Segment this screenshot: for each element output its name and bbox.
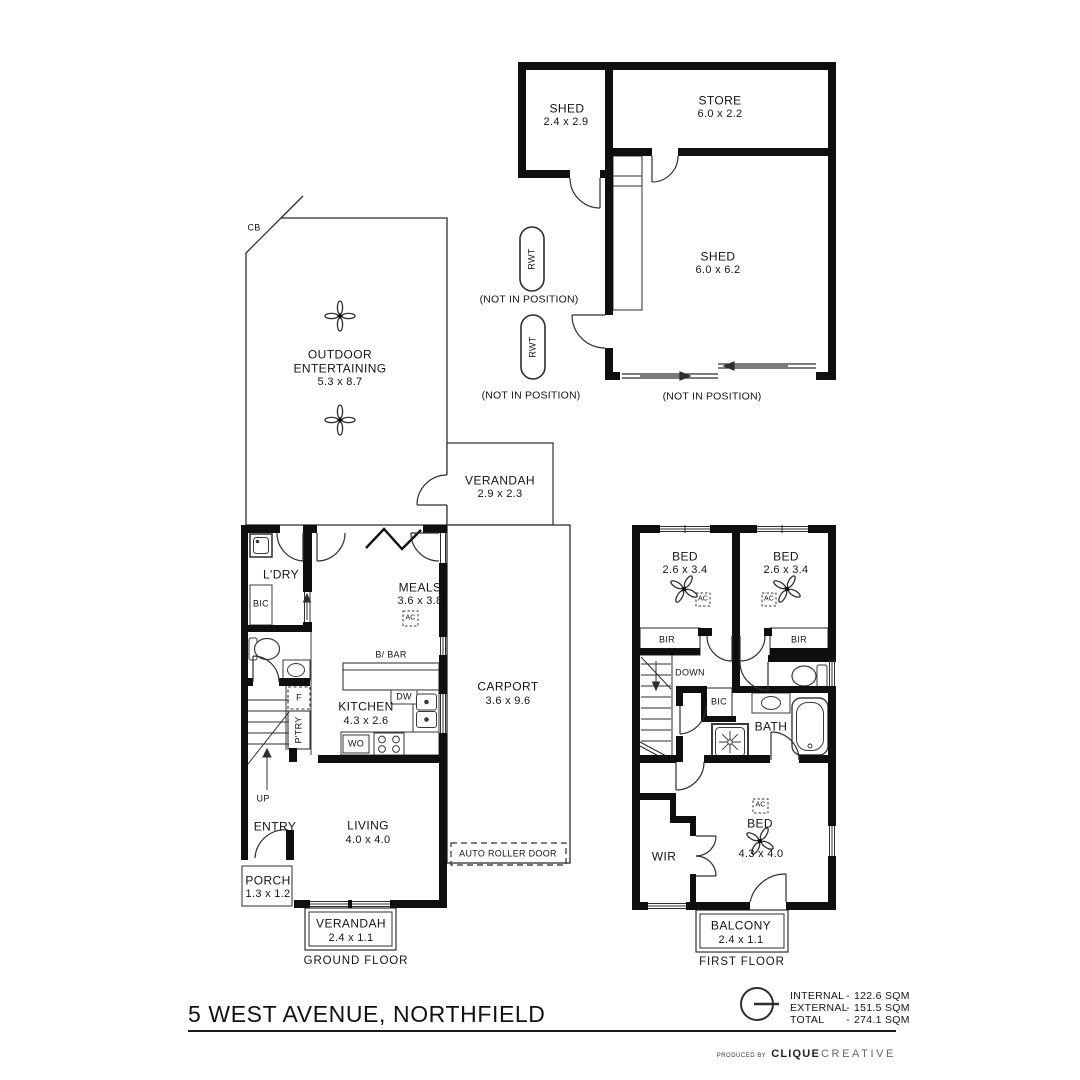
dim-label-balcony: 2.4 x 1.1 xyxy=(719,934,764,948)
dim-label-shed-large: 6.0 x 6.2 xyxy=(696,264,741,278)
brand-name-primary: CLIQUE xyxy=(771,1048,820,1060)
ac-label-bed2: AC xyxy=(764,595,774,604)
shower-icon xyxy=(712,724,748,760)
summary-value: 274.1 SQM xyxy=(854,1014,924,1026)
page-title-address: 5 WEST AVENUE, NORTHFIELD xyxy=(188,1001,546,1028)
room-label-meals: MEALS xyxy=(399,581,442,596)
room-label-carport: CARPORT xyxy=(477,680,538,695)
room-label-living: LIVING xyxy=(347,819,389,834)
wall-break-symbol xyxy=(366,529,421,549)
ff-toilet-icon xyxy=(817,665,827,687)
summary-label: INTERNAL xyxy=(790,990,842,1002)
footer-divider-line xyxy=(188,1030,896,1032)
room-label-wir: WIR xyxy=(652,850,677,865)
stairs-down-label: DOWN xyxy=(675,667,705,678)
room-label-porch: PORCH xyxy=(245,874,290,889)
dim-label-kitchen: 4.3 x 2.6 xyxy=(344,715,389,729)
fridge-label: F xyxy=(296,692,302,703)
summary-dash: - xyxy=(842,1002,854,1014)
dim-label-verandah-rear: 2.9 x 2.3 xyxy=(478,488,523,502)
room-label-kitchen: KITCHEN xyxy=(338,700,393,715)
summary-value: 151.5 SQM xyxy=(854,1002,924,1014)
dim-label-bed1: 2.6 x 3.4 xyxy=(663,564,708,578)
bir-label-right: BIR xyxy=(791,634,807,645)
cb-label: CB xyxy=(247,222,260,233)
rwt-label-2: RWT xyxy=(527,336,538,357)
pantry-label: P'TRY xyxy=(293,716,304,743)
dim-label-porch: 1.3 x 1.2 xyxy=(246,888,291,902)
first-floor-plan xyxy=(632,525,836,952)
dim-label-bed3: 4.3 x 4.0 xyxy=(739,848,784,862)
room-label-shed-small: SHED xyxy=(550,102,585,117)
room-label-bath: BATH xyxy=(755,720,788,735)
dim-label-outdoor: 5.3 x 8.7 xyxy=(318,376,363,390)
north-compass-icon xyxy=(741,988,779,1020)
room-label-verandah-front: VERANDAH xyxy=(316,917,386,932)
shed-sliding-door xyxy=(622,362,816,380)
breakfast-bar-label: B/ BAR xyxy=(375,649,406,660)
summary-dash: - xyxy=(842,990,854,1002)
dim-label-store: 6.0 x 2.2 xyxy=(698,108,743,122)
ac-label-bed3: AC xyxy=(755,802,765,811)
room-label-shed-large: SHED xyxy=(701,250,736,265)
dishwasher-label: DW xyxy=(396,691,412,702)
cooktop-icon xyxy=(374,733,404,755)
gf-stairs xyxy=(248,700,289,790)
ff-stairs xyxy=(640,655,672,761)
producer-credit: PRODUCED BY CLIQUE CREATIVE xyxy=(717,1048,896,1060)
brand-name-secondary: CREATIVE xyxy=(821,1048,896,1060)
summary-label: EXTERNAL xyxy=(790,1002,842,1014)
room-label-bed2: BED xyxy=(773,550,799,565)
room-label-balcony: BALCONY xyxy=(711,919,771,934)
shed-door-arcs xyxy=(570,156,678,348)
summary-dash: - xyxy=(842,1014,854,1026)
room-label-outdoor-2: ENTERTAINING xyxy=(293,362,386,377)
floorplan-page: SHED 2.4 x 2.9 STORE 6.0 x 2.2 SHED 6.0 … xyxy=(0,0,1080,1080)
room-label-outdoor-1: OUTDOOR xyxy=(308,348,372,363)
bic-label-ff: BIC xyxy=(711,696,727,707)
ac-label-meals: AC xyxy=(405,614,415,623)
room-label-entry: ENTRY xyxy=(254,820,296,835)
room-label-bed3: BED xyxy=(747,817,773,832)
room-label-store: STORE xyxy=(698,94,741,109)
dim-label-carport: 3.6 x 9.6 xyxy=(486,695,531,709)
dim-label-shed-small: 2.4 x 2.9 xyxy=(544,116,589,130)
auto-roller-door-label: AUTO ROLLER DOOR xyxy=(459,848,557,859)
floorplan-drawing xyxy=(0,0,1080,1080)
dim-label-bed2: 2.6 x 3.4 xyxy=(764,564,809,578)
produced-by-label: PRODUCED BY xyxy=(717,1053,767,1059)
stairs-up-label: UP xyxy=(256,793,269,804)
summary-row-internal: INTERNAL - 122.6 SQM xyxy=(790,990,924,1002)
slider-door-arrow xyxy=(304,592,311,622)
note-not-in-position-rwt2: (NOT IN POSITION) xyxy=(482,389,581,402)
room-label-verandah-rear: VERANDAH xyxy=(465,474,535,489)
breakfast-bar-bench xyxy=(343,663,439,690)
bir-label-left: BIR xyxy=(659,634,675,645)
note-not-in-position-rwt1: (NOT IN POSITION) xyxy=(480,293,579,306)
shed-mezzanine xyxy=(613,156,642,310)
room-label-laundry: L'DRY xyxy=(263,568,299,583)
note-not-in-position-shed: (NOT IN POSITION) xyxy=(663,390,762,403)
room-label-bed1: BED xyxy=(672,550,698,565)
floor-title-ground: GROUND FLOOR xyxy=(304,954,409,968)
floor-title-first: FIRST FLOOR xyxy=(699,955,785,969)
summary-row-external: EXTERNAL - 151.5 SQM xyxy=(790,1002,924,1014)
summary-row-total: TOTAL - 274.1 SQM xyxy=(790,1014,924,1026)
rwt-label-1: RWT xyxy=(526,248,537,269)
dim-label-meals: 3.6 x 3.8 xyxy=(398,595,443,609)
summary-label: TOTAL xyxy=(790,1014,842,1026)
dim-label-verandah-front: 2.4 x 1.1 xyxy=(329,932,374,946)
wall-oven-label: WO xyxy=(348,738,364,749)
bic-label-gf: BIC xyxy=(253,598,269,609)
dim-label-living: 4.0 x 4.0 xyxy=(346,834,391,848)
summary-value: 122.6 SQM xyxy=(854,990,924,1002)
ac-label-bed1: AC xyxy=(698,595,708,604)
